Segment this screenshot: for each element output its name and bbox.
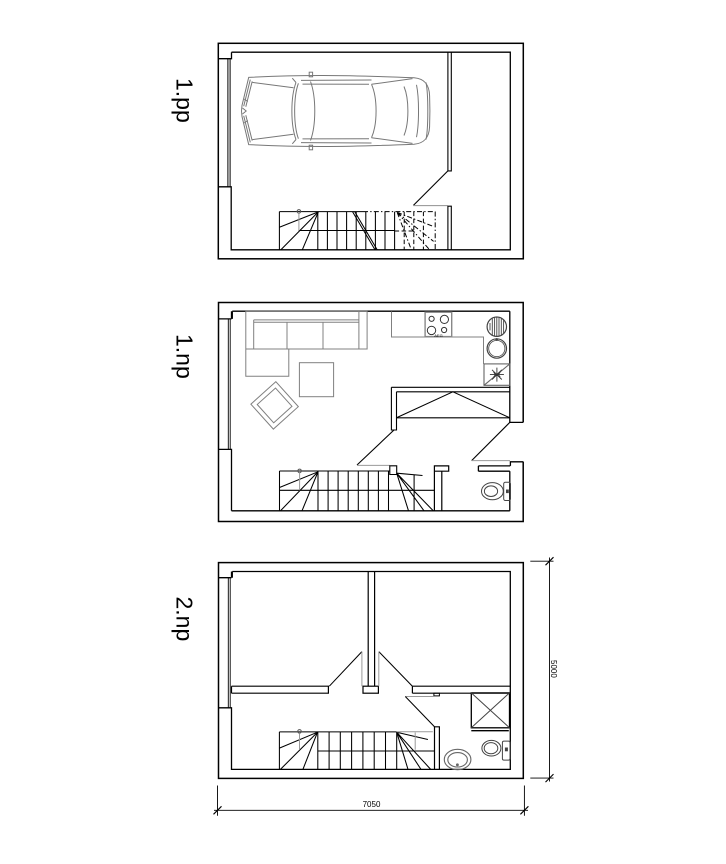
- svg-text:7050: 7050: [363, 800, 381, 809]
- svg-text:1.pp: 1.pp: [172, 78, 198, 123]
- svg-text:2.np: 2.np: [172, 597, 198, 642]
- svg-text:1.np: 1.np: [172, 334, 198, 379]
- svg-text:5000: 5000: [549, 660, 558, 678]
- svg-text:AEG: AEG: [434, 333, 442, 338]
